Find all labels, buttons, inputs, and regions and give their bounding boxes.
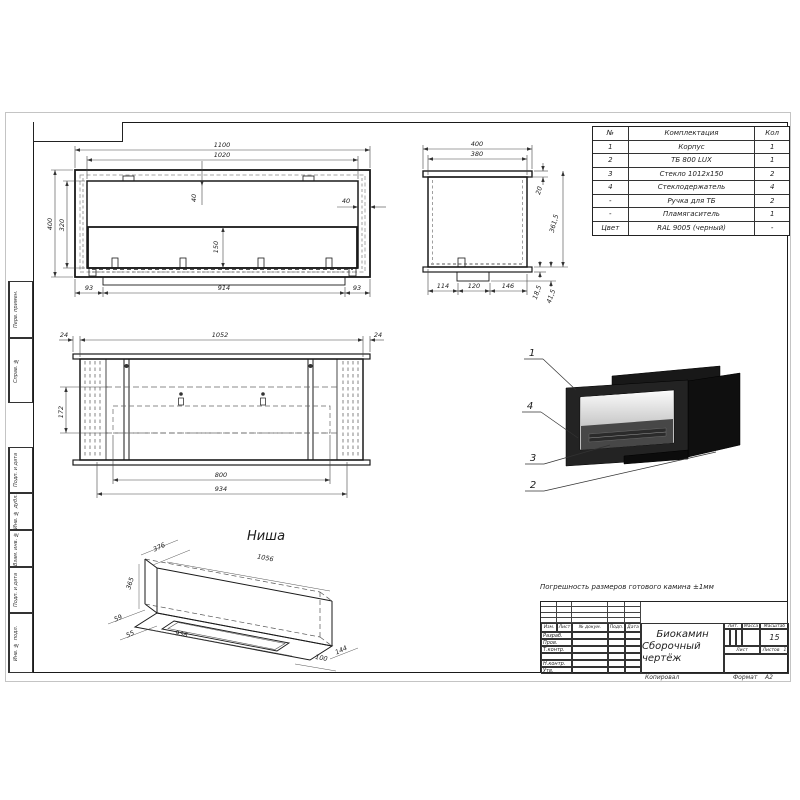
parts-row: - Пламягаситель 1	[593, 208, 789, 222]
margin-label: Подп. и дата	[9, 448, 22, 492]
margin-label: Инв. № дубл.	[9, 494, 22, 529]
parts-row: 2 ТБ 800 LUX 1	[593, 154, 789, 168]
tolerance-note: Погрешность размеров готового камина ±1м…	[540, 583, 800, 591]
format-label: Формат	[733, 674, 757, 681]
top-left-stamp-box	[33, 122, 123, 142]
part-name: Корпус	[629, 141, 756, 155]
margin-cell: Инв. № подл.	[8, 613, 33, 673]
part-name: Стеклодержатель	[629, 181, 756, 195]
part-num: Цвет	[593, 222, 629, 236]
margin-label: Инв. № подл.	[9, 614, 22, 672]
sheets-cell: Листов 1	[760, 646, 789, 654]
margin-cell: Перв. примен.	[8, 281, 33, 338]
parts-row: 1 Корпус 1	[593, 141, 789, 155]
part-num: 4	[593, 181, 629, 195]
part-num: -	[593, 208, 629, 222]
row-blank	[541, 653, 572, 660]
part-name: Стекло 1012х150	[629, 168, 756, 182]
part-qty: 1	[755, 154, 789, 168]
part-num: 3	[593, 168, 629, 182]
part-num: -	[593, 195, 629, 209]
part-name: Ручка для ТБ	[629, 195, 756, 209]
margin-label: Подп. и дата	[9, 568, 22, 612]
part-qty: -	[755, 222, 789, 236]
title-line1: Биокамин	[656, 629, 708, 641]
parts-header-num: №	[593, 127, 629, 141]
margin-cell: Взам. инв. №	[8, 530, 33, 567]
sheet-label: Лист	[724, 646, 760, 654]
sheets-value: 1	[783, 648, 786, 653]
margin-cell: Подп. и дата	[8, 447, 33, 493]
sheets-label: Листов	[763, 648, 780, 653]
col-list: Лист	[557, 623, 572, 632]
part-qty: 1	[755, 208, 789, 222]
org-cell	[724, 654, 789, 674]
part-name: ТБ 800 LUX	[629, 154, 756, 168]
part-qty: 4	[755, 181, 789, 195]
col-izm: Изм.	[541, 623, 557, 632]
title-line2: Сборочный чертёж	[642, 641, 723, 665]
part-qty: 1	[755, 141, 789, 155]
parts-header-name: Комплектация	[629, 127, 756, 141]
part-name: RAL 9005 (черный)	[629, 222, 756, 236]
parts-table: № Комплектация Кол 1 Корпус 1 2 ТБ 800 L…	[592, 126, 790, 236]
part-qty: 2	[755, 168, 789, 182]
parts-header-row: № Комплектация Кол	[593, 127, 789, 141]
margin-cell: Подп. и дата	[8, 567, 33, 613]
part-name: Пламягаситель	[629, 208, 756, 222]
parts-row: 4 Стеклодержатель 4	[593, 181, 789, 195]
part-num: 2	[593, 154, 629, 168]
row-razrab: Разраб.	[541, 632, 572, 639]
row-nkontr: Н.контр.	[541, 660, 572, 667]
margin-cell: Инв. № дубл.	[8, 493, 33, 530]
col-data: Дата	[625, 623, 641, 632]
parts-row: Цвет RAL 9005 (черный) -	[593, 222, 789, 236]
part-num: 1	[593, 141, 629, 155]
row-tkontr: Т.контр.	[541, 646, 572, 653]
margin-label: Справ. №	[9, 339, 22, 402]
margin-label: Перв. примен.	[9, 282, 22, 337]
parts-row: 3 Стекло 1012х150 2	[593, 168, 789, 182]
col-dokum: № докум.	[572, 623, 608, 632]
col-podp: Подп.	[608, 623, 625, 632]
scale-value: 15	[760, 629, 789, 646]
drawing-title: Биокамин Сборочный чертёж	[641, 623, 724, 674]
mass-value	[742, 629, 760, 646]
row-prov: Пров.	[541, 639, 572, 646]
revision-grid	[541, 602, 641, 623]
margin-label: Взам. инв. №	[9, 531, 22, 566]
row-utv: Утв.	[541, 667, 572, 674]
copied-label: Копировал	[645, 674, 679, 681]
parts-header-qty: Кол	[755, 127, 789, 141]
margin-cell: Справ. №	[8, 338, 33, 403]
parts-row: - Ручка для ТБ 2	[593, 195, 789, 209]
title-block: Изм. Лист № докум. Подп. Дата Разраб. Пр…	[540, 601, 788, 673]
part-qty: 2	[755, 195, 789, 209]
format-value: А2	[765, 674, 773, 681]
